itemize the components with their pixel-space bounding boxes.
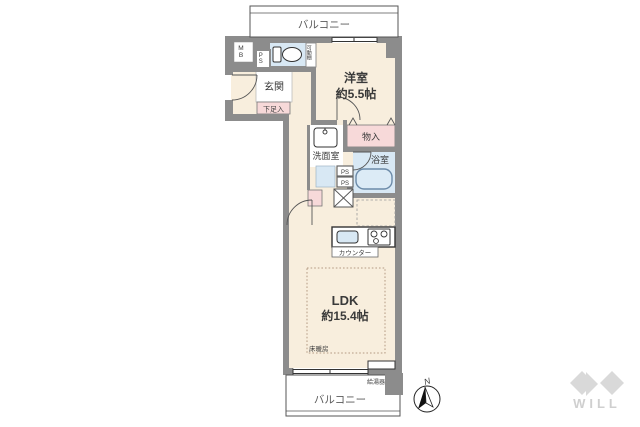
will-logo-mark (570, 371, 624, 396)
bathtub-icon (356, 169, 392, 189)
floorplan-page: MB PS 可動棚 PS PS (0, 0, 640, 427)
hallway-pink-cabinet (308, 190, 322, 206)
wall-corridor-east (307, 125, 310, 190)
bathroom-label: 浴室 (371, 154, 389, 165)
counter-bar: カウンター (332, 247, 378, 257)
meter-box-label: MB (238, 45, 245, 59)
water-heater-wall-overlay (385, 373, 403, 395)
compass-n-label: N (423, 375, 433, 387)
balcony-bottom: バルコニー 給湯器 (286, 373, 403, 416)
wall-western-bottom (311, 120, 337, 125)
wall-above-ps (255, 41, 270, 50)
ldk-label: LDK (332, 293, 359, 308)
stove-icon (368, 229, 390, 245)
balcony-bottom-label: バルコニー (314, 394, 366, 406)
wall-left-lower (225, 100, 233, 114)
kitchen-sink-icon (337, 231, 358, 243)
washer-space (334, 189, 353, 207)
balcony-top-label: バルコニー (298, 19, 350, 31)
counter-label: カウンター (339, 248, 372, 257)
wall-east-notch (386, 43, 395, 58)
kitchen-counter (332, 227, 395, 247)
wall-entrance-bottom (225, 114, 289, 121)
sink-icon (314, 128, 337, 147)
wall-bath-west-stub (347, 147, 353, 152)
utility-blue-floor (316, 166, 335, 187)
floor-heating-label: 床暖房 (309, 344, 329, 353)
wall-west-column (283, 114, 289, 370)
balcony-door-window (293, 368, 368, 375)
washroom-label: 洗面室 (312, 150, 339, 161)
compass: N (414, 375, 440, 412)
water-heater-niche (368, 361, 395, 369)
will-logo-text: WILL (573, 396, 621, 411)
balcony-top: バルコニー (250, 6, 398, 37)
ps-duct-2-label: PS (341, 181, 349, 187)
ldk-size-label: 約15.4帖 (321, 308, 368, 323)
floorplan-canvas: MB PS 可動棚 PS PS (0, 0, 640, 427)
water-heater-label: 給湯器 (367, 378, 385, 386)
wall-bath-bottom (350, 193, 395, 198)
shoe-cabinet-label: 下足入 (263, 106, 284, 114)
storage-label: 物入 (362, 131, 380, 142)
pipe-space-label: PS (258, 53, 264, 65)
ps-duct-1-label: PS (341, 170, 349, 176)
movable-shelf-label: 可動棚 (306, 45, 312, 61)
western-room-size-label: 約5.5帖 (336, 86, 377, 101)
wall-east (395, 43, 402, 375)
will-logo: WILL (570, 371, 624, 411)
entrance-label: 玄関 (264, 80, 284, 93)
toilet-icon (273, 47, 302, 62)
western-room-label: 洋室 (344, 70, 368, 85)
wall-storage-left (343, 120, 347, 147)
